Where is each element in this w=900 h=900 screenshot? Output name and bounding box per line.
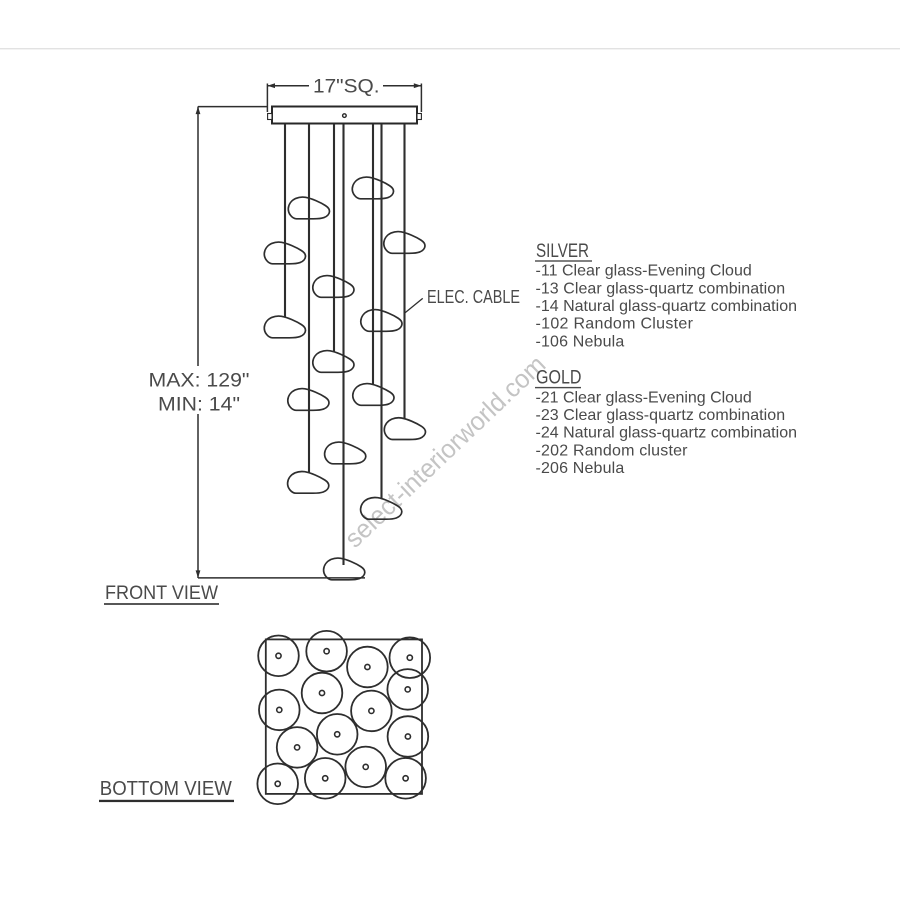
svg-text:-23 Clear glass-quartz combina: -23 Clear glass-quartz combination bbox=[536, 407, 786, 424]
svg-text:-13 Clear glass-quartz combina: -13 Clear glass-quartz combination bbox=[536, 280, 786, 297]
svg-text:SILVER: SILVER bbox=[536, 241, 589, 262]
svg-text:MAX: 129": MAX: 129" bbox=[149, 370, 250, 392]
svg-text:-11 Clear glass-Evening Cloud: -11 Clear glass-Evening Cloud bbox=[536, 263, 752, 280]
svg-text:-24 Natural glass-quartz combi: -24 Natural glass-quartz combination bbox=[536, 425, 798, 442]
svg-text:MIN: 14": MIN: 14" bbox=[158, 394, 240, 416]
svg-text:17"SQ.: 17"SQ. bbox=[313, 76, 380, 98]
svg-text:-202 Random cluster: -202 Random cluster bbox=[536, 442, 689, 459]
svg-text:ELEC. CABLE: ELEC. CABLE bbox=[427, 286, 520, 307]
svg-text:-102 Random Cluster: -102 Random Cluster bbox=[536, 316, 694, 333]
svg-text:-206 Nebula: -206 Nebula bbox=[536, 460, 625, 477]
svg-text:-106 Nebula: -106 Nebula bbox=[536, 333, 625, 350]
svg-text:FRONT VIEW: FRONT VIEW bbox=[105, 582, 219, 604]
svg-text:-14 Natural glass-quartz combi: -14 Natural glass-quartz combination bbox=[536, 298, 798, 315]
svg-text:-21 Clear glass-Evening Cloud: -21 Clear glass-Evening Cloud bbox=[536, 389, 752, 406]
svg-text:GOLD: GOLD bbox=[536, 368, 582, 389]
svg-text:BOTTOM VIEW: BOTTOM VIEW bbox=[100, 777, 233, 800]
